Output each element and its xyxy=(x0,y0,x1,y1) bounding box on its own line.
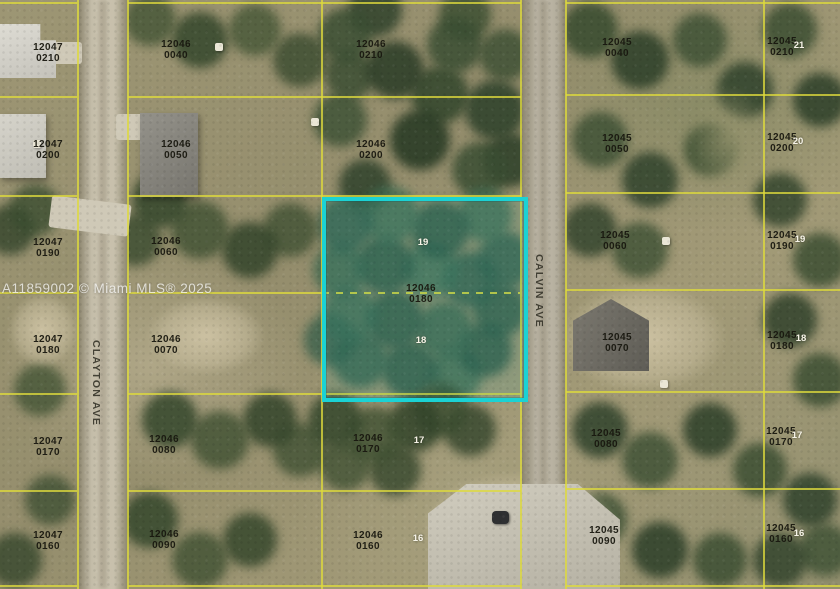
parcel-label: 120470180 xyxy=(24,334,72,356)
parcel-boundary-line xyxy=(128,585,521,587)
parcel-label: 120460170 xyxy=(344,433,392,455)
parcel-label: 120450080 xyxy=(582,428,630,450)
parcel-boundary-line xyxy=(128,2,521,4)
mls-watermark: A11859002 © Miami MLS® 2025 xyxy=(2,281,212,296)
parcel-label: 120460210 xyxy=(347,39,395,61)
parcel-label: 120470170 xyxy=(24,436,72,458)
aerial-map[interactable]: 120470210 120470200 120470190 120470180 … xyxy=(0,0,840,589)
parcel-label: 120460050 xyxy=(152,139,200,161)
lot-number: 21 xyxy=(789,40,809,51)
lot-number: 18 xyxy=(791,333,811,344)
parcel-boundary-line xyxy=(0,393,77,395)
parcel-label: 120470190 xyxy=(24,237,72,259)
parcel-label: 120450070 xyxy=(593,332,641,354)
parcel-boundary-line xyxy=(128,96,521,98)
parcel-label: 120470210 xyxy=(24,42,72,64)
parcel-boundary-line xyxy=(128,490,521,492)
street-label-calvin-ave: CALVIN AVE xyxy=(533,252,545,330)
parcel-label: 120460060 xyxy=(142,236,190,258)
parcel-label: 120460200 xyxy=(347,139,395,161)
parcel-boundary-line xyxy=(566,2,840,4)
parcel-boundary-line xyxy=(566,289,840,291)
lot-number: 19 xyxy=(790,234,810,245)
lot-number: 20 xyxy=(788,136,808,147)
parcel-boundary-line xyxy=(566,94,840,96)
parcel-label: 120470160 xyxy=(24,530,72,552)
parcel-label: 120450090 xyxy=(580,525,628,547)
parcel-label: 120450050 xyxy=(593,133,641,155)
lot-number: 17 xyxy=(409,435,429,446)
lot-number: 16 xyxy=(789,528,809,539)
parcel-boundary-line xyxy=(0,96,77,98)
parcel-label: 120460160 xyxy=(344,530,392,552)
parcel-boundary-line xyxy=(565,0,567,589)
parcel-boundary-line xyxy=(566,585,840,587)
parcel-boundary-line xyxy=(0,195,77,197)
highlighted-parcel-label: 120460180 xyxy=(397,283,445,305)
lot-number: 18 xyxy=(411,335,431,346)
parcel-label: 120460070 xyxy=(142,334,190,356)
parcel-label: 120460090 xyxy=(140,529,188,551)
street-label-clayton-ave: CLAYTON AVE xyxy=(90,340,102,426)
parcel-boundary-line xyxy=(566,192,840,194)
parcel-boundary-line xyxy=(566,488,840,490)
lot-number: 17 xyxy=(787,430,807,441)
lot-number: 19 xyxy=(413,237,433,248)
parcel-boundary-line xyxy=(763,0,765,589)
parcel-boundary-line xyxy=(0,585,77,587)
parcel-label: 120470200 xyxy=(24,139,72,161)
parcel-label: 120460040 xyxy=(152,39,200,61)
parcel-boundary-line xyxy=(566,391,840,393)
parcel-boundary-line xyxy=(0,490,77,492)
parcel-label: 120460080 xyxy=(140,434,188,456)
lot-number: 16 xyxy=(408,533,428,544)
parcel-label: 120450060 xyxy=(591,230,639,252)
parcel-boundary-line xyxy=(0,2,77,4)
parcel-label: 120450040 xyxy=(593,37,641,59)
